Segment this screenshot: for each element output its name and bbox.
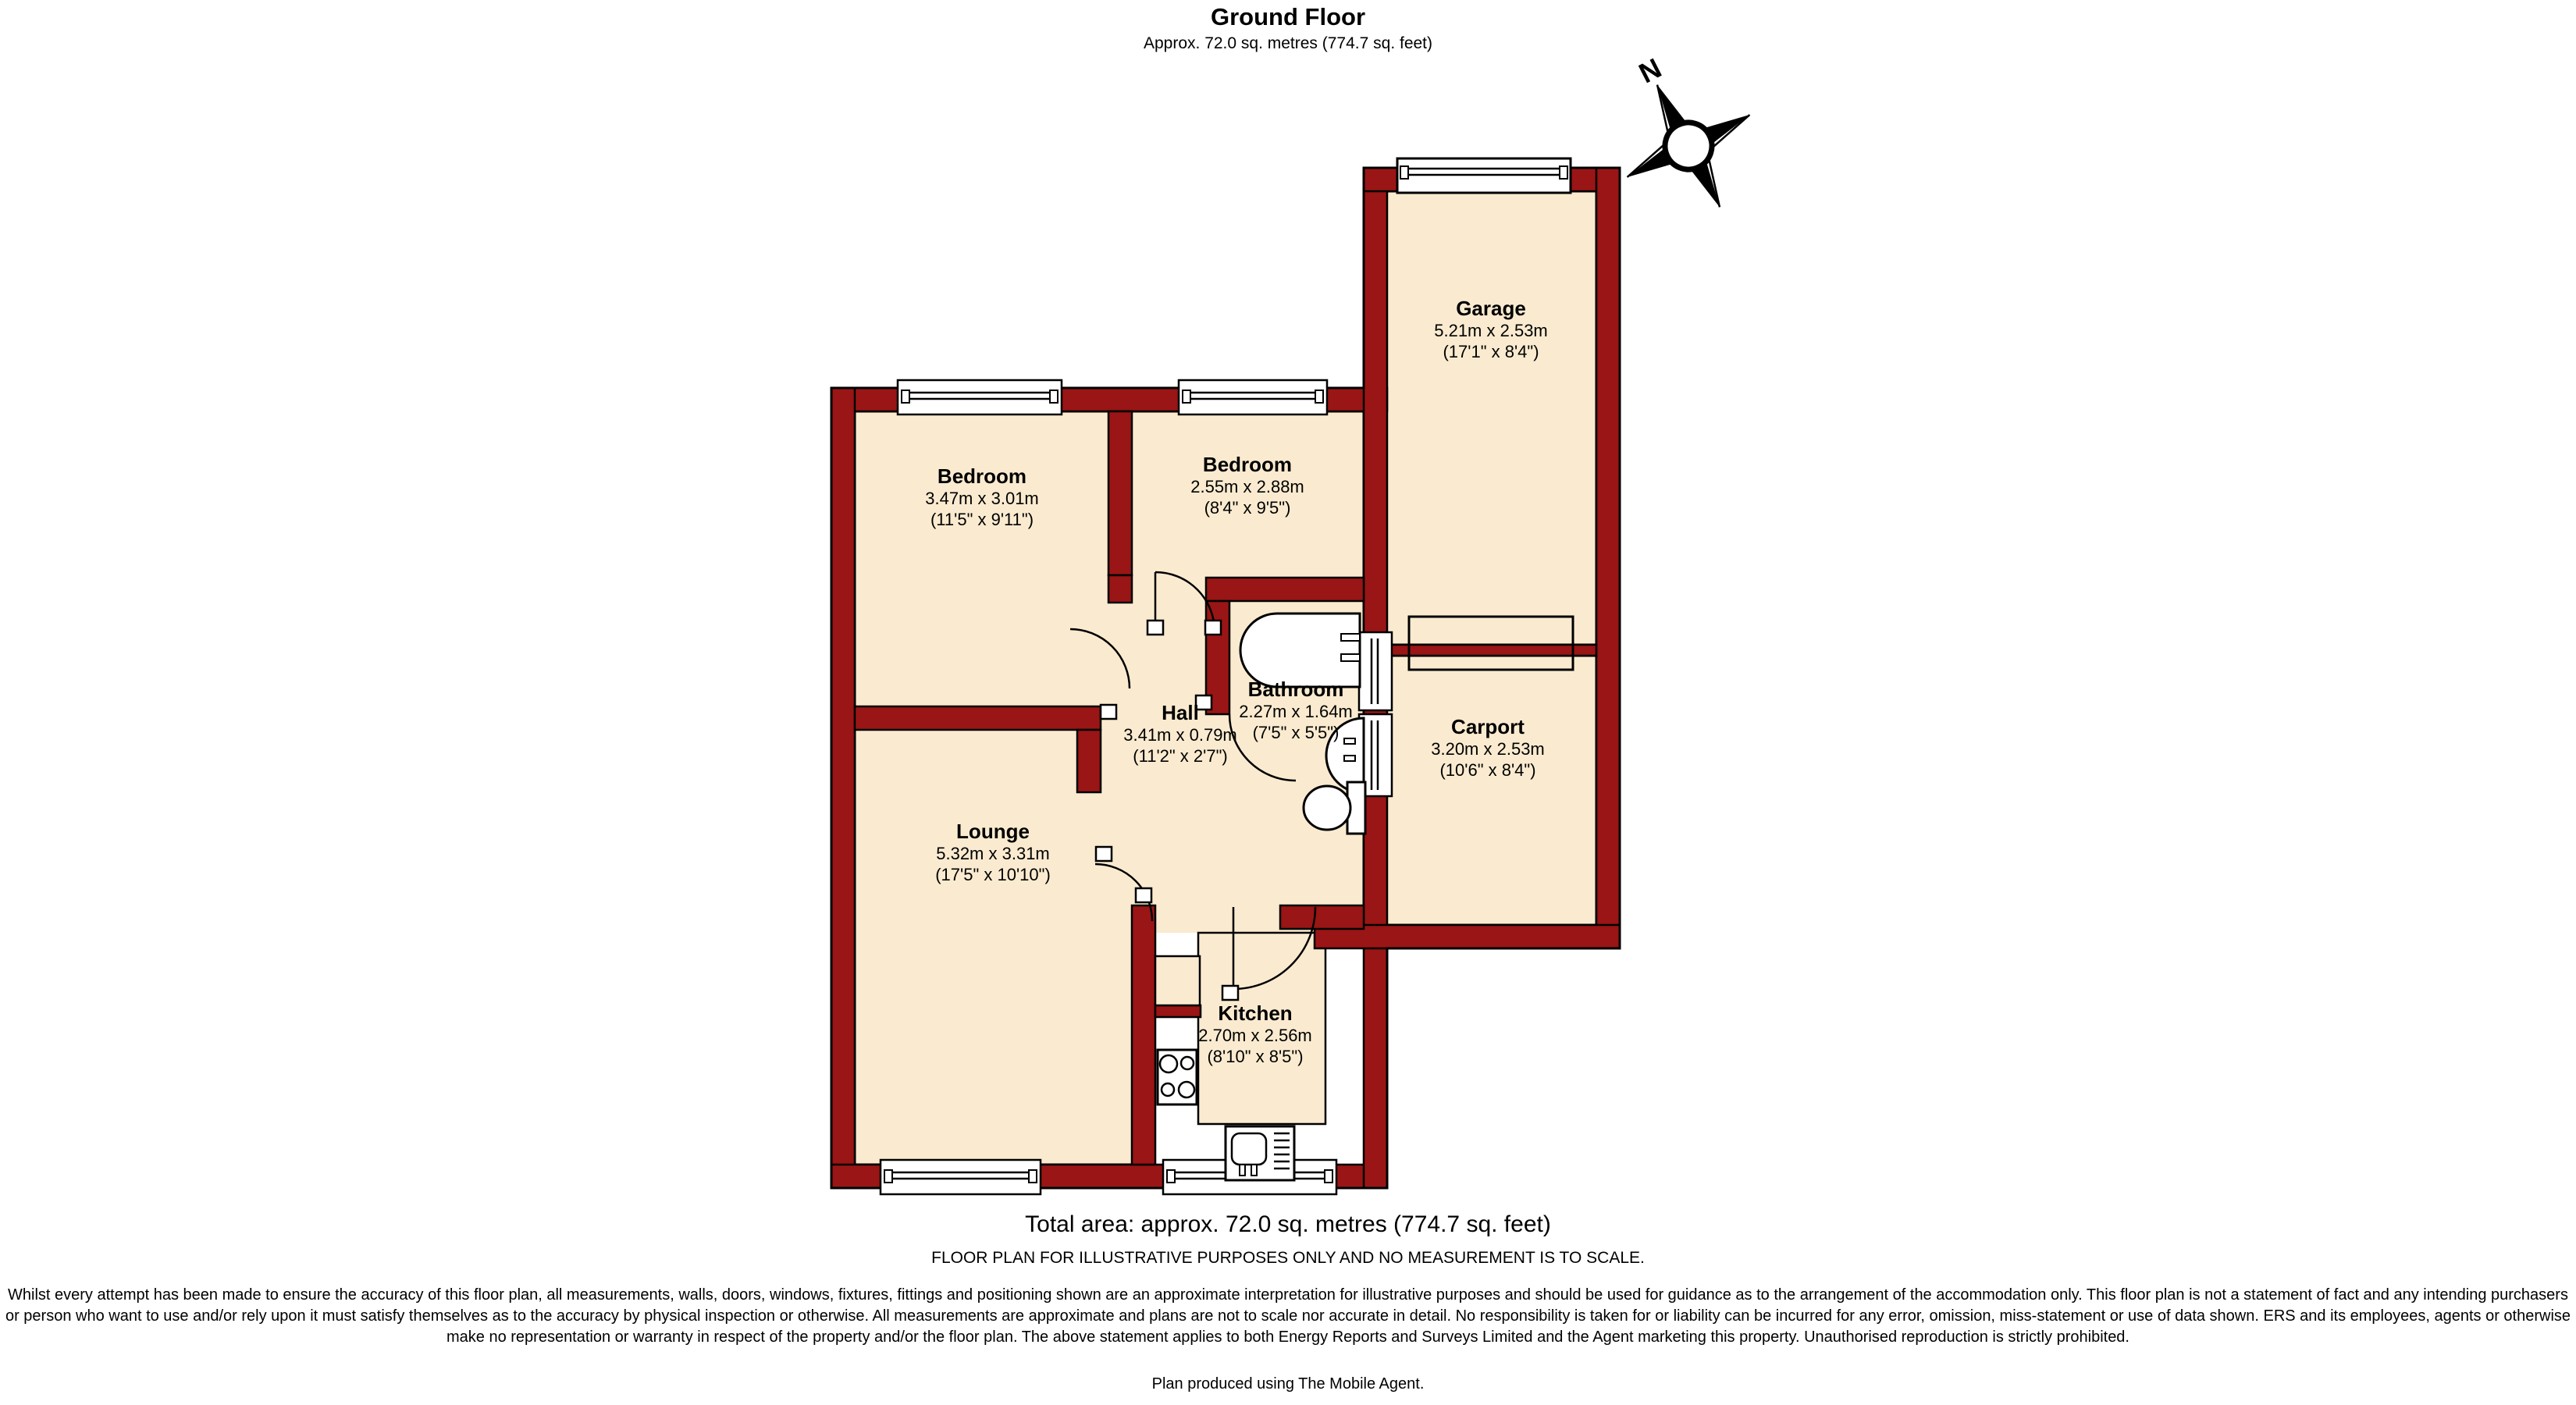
room-label-carport: Carport 3.20m x 2.53m (10'6" x 8'4") bbox=[1431, 715, 1545, 781]
room-dim-metric: 3.47m x 3.01m bbox=[925, 488, 1039, 509]
room-label-bathroom: Bathroom 2.27m x 1.64m (7'5" x 5'5") bbox=[1239, 678, 1353, 743]
room-dim-metric: 3.41m x 0.79m bbox=[1123, 724, 1237, 745]
room-name: Garage bbox=[1434, 297, 1548, 320]
room-label-lounge: Lounge 5.32m x 3.31m (17'5" x 10'10") bbox=[935, 820, 1051, 885]
room-dim-imperial: (8'10" x 8'5") bbox=[1198, 1046, 1312, 1067]
room-dim-imperial: (11'5" x 9'11") bbox=[925, 509, 1039, 530]
room-name: Kitchen bbox=[1198, 1001, 1312, 1025]
room-dim-metric: 2.70m x 2.56m bbox=[1198, 1025, 1312, 1046]
credit-text: Plan produced using The Mobile Agent. bbox=[0, 1374, 2576, 1395]
room-label-bedroom-2: Bedroom 2.55m x 2.88m (8'4" x 9'5") bbox=[1190, 453, 1304, 518]
room-dim-imperial: (17'5" x 10'10") bbox=[935, 864, 1051, 885]
room-name: Carport bbox=[1431, 715, 1545, 738]
room-name: Bedroom bbox=[925, 464, 1039, 488]
room-label-hall: Hall 3.41m x 0.79m (11'2" x 2'7") bbox=[1123, 701, 1237, 767]
kitchen-sink bbox=[1226, 1126, 1294, 1180]
room-label-bedroom-1: Bedroom 3.47m x 3.01m (11'5" x 9'11") bbox=[925, 464, 1039, 530]
room-label-kitchen: Kitchen 2.70m x 2.56m (8'10" x 8'5") bbox=[1198, 1001, 1312, 1067]
kitchen-larder bbox=[1155, 956, 1200, 1005]
window bbox=[1179, 380, 1327, 414]
total-area-text: Total area: approx. 72.0 sq. metres (774… bbox=[0, 1211, 2576, 1238]
room-dim-imperial: (7'5" x 5'5") bbox=[1239, 722, 1353, 743]
scale-note-text: FLOOR PLAN FOR ILLUSTRATIVE PURPOSES ONL… bbox=[0, 1249, 2576, 1268]
room-dim-imperial: (11'2" x 2'7") bbox=[1123, 745, 1237, 767]
room-name: Bathroom bbox=[1239, 678, 1353, 701]
room-dim-metric: 5.32m x 3.31m bbox=[935, 843, 1051, 864]
room-name: Lounge bbox=[935, 820, 1051, 843]
room-dim-imperial: (10'6" x 8'4") bbox=[1431, 759, 1545, 781]
room-name: Hall bbox=[1123, 701, 1237, 724]
window bbox=[898, 380, 1062, 414]
garage-door bbox=[1397, 158, 1571, 193]
window bbox=[881, 1160, 1041, 1194]
disclaimer-text: Whilst every attempt has been made to en… bbox=[0, 1285, 2576, 1348]
room-name: Bedroom bbox=[1190, 453, 1304, 476]
bathtub bbox=[1240, 614, 1360, 687]
north-label: N bbox=[1634, 52, 1667, 89]
room-dim-metric: 2.55m x 2.88m bbox=[1190, 476, 1304, 497]
room-dim-imperial: (17'1" x 8'4") bbox=[1434, 341, 1548, 362]
floorplan-page: Ground Floor Approx. 72.0 sq. metres (77… bbox=[0, 0, 2576, 1405]
room-dim-metric: 2.27m x 1.64m bbox=[1239, 701, 1353, 722]
room-dim-imperial: (8'4" x 9'5") bbox=[1190, 497, 1304, 518]
room-dim-metric: 3.20m x 2.53m bbox=[1431, 738, 1545, 759]
hob bbox=[1158, 1050, 1197, 1104]
room-dim-metric: 5.21m x 2.53m bbox=[1434, 320, 1548, 341]
window bbox=[1359, 632, 1392, 710]
toilet bbox=[1304, 782, 1365, 834]
room-label-garage: Garage 5.21m x 2.53m (17'1" x 8'4") bbox=[1434, 297, 1548, 362]
